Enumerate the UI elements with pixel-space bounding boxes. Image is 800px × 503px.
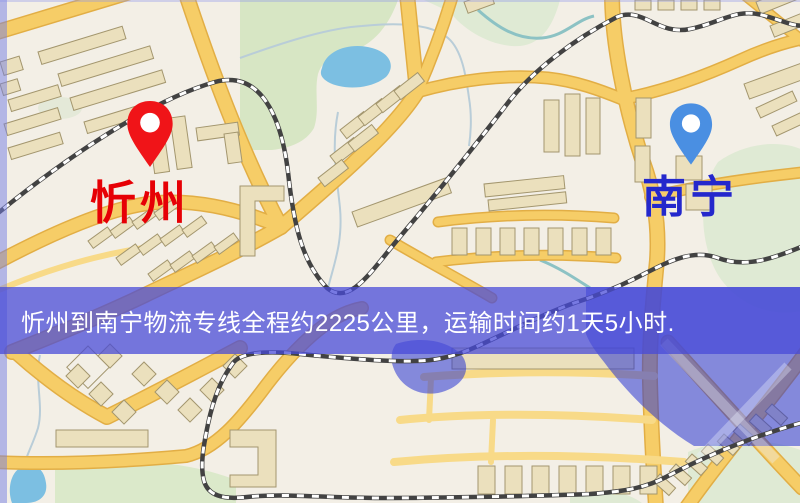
left-edge-tint xyxy=(0,0,7,503)
map-canvas xyxy=(0,0,800,503)
origin-pin-icon[interactable] xyxy=(125,100,175,168)
logistics-map-page: 忻州 南宁 忻州到南宁物流专线全程约2225公里，运输时间约1天5小时. xyxy=(0,0,800,503)
origin-city-label: 忻州 xyxy=(90,181,190,227)
route-info-text: 忻州到南宁物流专线全程约2225公里，运输时间约1天5小时. xyxy=(21,303,675,338)
destination-pin-icon[interactable] xyxy=(668,102,714,166)
route-info-banner: 忻州到南宁物流专线全程约2225公里，运输时间约1天5小时. xyxy=(0,287,800,354)
destination-city-label: 南宁 xyxy=(642,176,738,220)
top-edge-tint xyxy=(0,0,800,2)
